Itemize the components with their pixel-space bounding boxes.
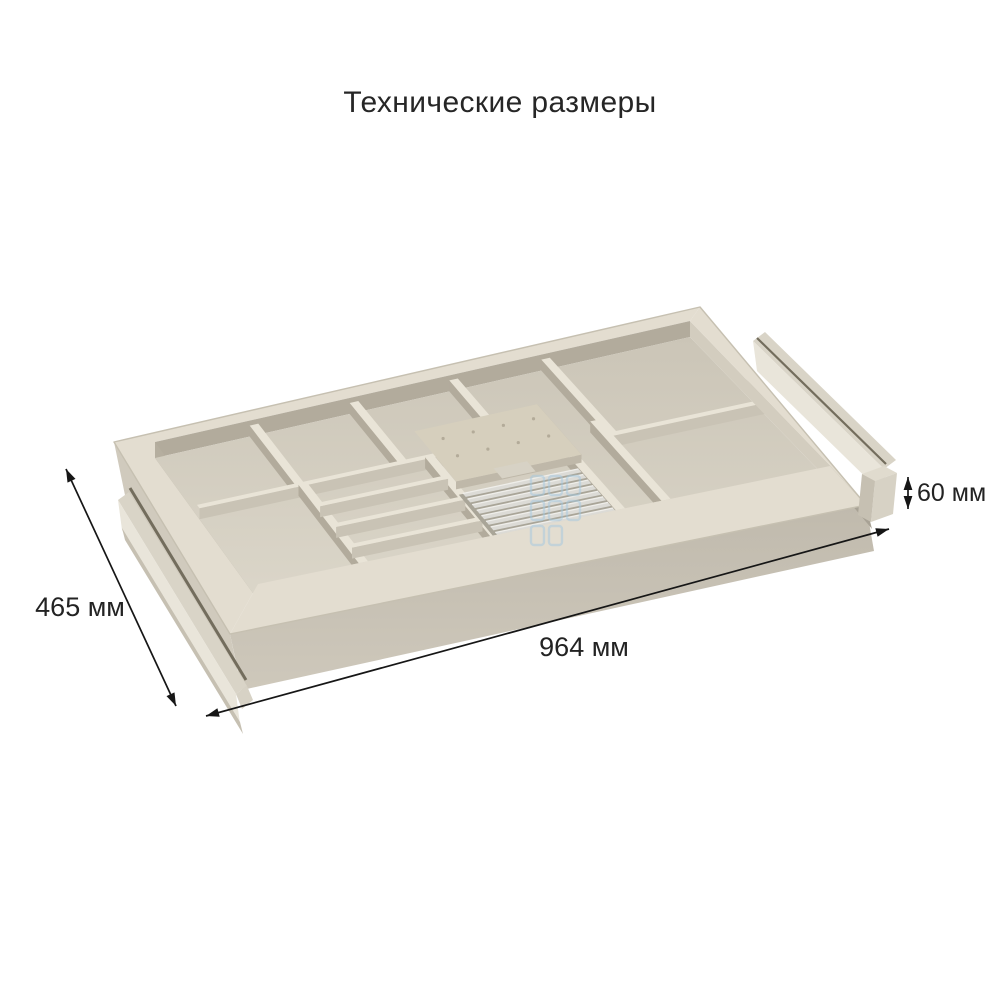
length-dimension-label: 964 мм xyxy=(539,632,629,662)
screenshot-root: Технические размеры 465 мм 964 мм 60 мм xyxy=(0,0,1000,1000)
board-hole xyxy=(472,430,475,433)
board-hole xyxy=(442,437,445,440)
height-dimension-label: 60 мм xyxy=(917,479,986,507)
arrowhead xyxy=(66,469,76,483)
depth-dimension-label: 465 мм xyxy=(35,592,125,622)
board-hole xyxy=(547,434,550,437)
arrowhead xyxy=(167,692,177,706)
arrowhead xyxy=(875,528,889,537)
product-illustration: 465 мм 964 мм 60 мм xyxy=(0,0,1000,1000)
board-hole xyxy=(532,417,535,420)
arrowhead xyxy=(904,477,913,490)
arrowhead xyxy=(206,708,220,717)
board-hole xyxy=(517,441,520,444)
board-hole xyxy=(502,424,505,427)
board-hole xyxy=(456,454,459,457)
arrowhead xyxy=(904,496,913,509)
board-hole xyxy=(486,448,489,451)
